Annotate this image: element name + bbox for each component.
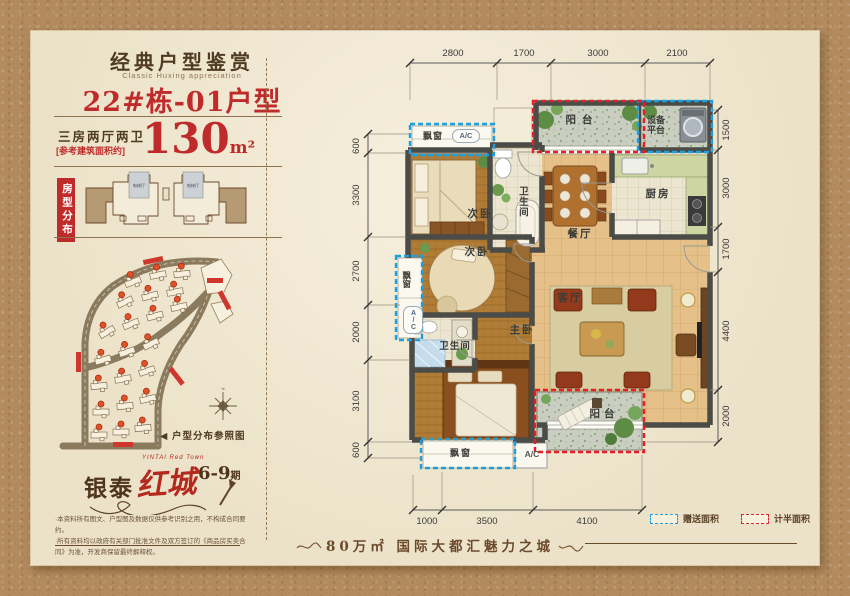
- area-value: 130: [142, 114, 230, 163]
- siteplan-map: N: [55, 248, 260, 453]
- footer-rule: [585, 543, 797, 544]
- siteplan-caption: ◀ 户型分布参照图: [160, 428, 245, 442]
- pointer-icon: ◀: [160, 431, 168, 442]
- brochure-card: 经典户型鉴赏 Classic Huxing appreciation 22#栋-…: [30, 30, 820, 566]
- svg-text:3000: 3000: [587, 48, 608, 59]
- disclaimer: ·本资料所有图文、户型图及数据仅供参考识别之用，不构成合同要约。 ·所有资料均以…: [55, 514, 255, 558]
- elevator-label: 电梯厅: [187, 182, 200, 189]
- svg-text:1700: 1700: [721, 238, 732, 259]
- dining-table: [544, 166, 606, 226]
- flourish-left-icon: [296, 541, 322, 553]
- svg-text:3000: 3000: [721, 177, 732, 198]
- legend-gift-area: 赠送面积: [650, 512, 719, 525]
- label-bath-a: 卫生间: [516, 178, 527, 226]
- label-bedroom-a: 次卧: [458, 208, 502, 220]
- legend-half-area: 计半面积: [741, 512, 810, 525]
- svg-text:3100: 3100: [351, 390, 362, 411]
- compass-icon: N: [209, 386, 237, 420]
- entry-lobby: [494, 108, 532, 148]
- page-subtitle: Classic Huxing appreciation: [82, 71, 282, 80]
- area-note: [参考建筑面积约]: [56, 144, 125, 157]
- svg-text:2800: 2800: [442, 48, 463, 59]
- disclaimer-line: ·所有资料均以政府有关部门批准文件及双方签订的《商品房买卖合同》为准，开发商保留…: [55, 536, 255, 558]
- label-ac-left: A/C: [403, 306, 423, 334]
- label-dining: 餐厅: [558, 228, 602, 240]
- svg-text:2000: 2000: [351, 321, 362, 342]
- developer-logo: 银泰 YINTAI Red Town 红城 6-9期: [60, 455, 260, 517]
- footprint-center-joint: [163, 188, 169, 200]
- label-bath-b: 卫生间: [425, 342, 485, 353]
- label-living: 客厅: [548, 292, 592, 304]
- svg-text:3300: 3300: [351, 184, 362, 205]
- svg-text:1500: 1500: [721, 119, 732, 140]
- svg-text:600: 600: [351, 442, 362, 458]
- label-balcony-bottom: 阳台: [576, 408, 632, 420]
- svg-text:4400: 4400: [721, 320, 732, 341]
- svg-text:3500: 3500: [476, 516, 497, 527]
- label-bay-left: 飘窗: [401, 262, 411, 296]
- svg-text:2700: 2700: [351, 260, 362, 281]
- svg-text:1700: 1700: [513, 48, 534, 59]
- area-figure: 130m²: [142, 118, 255, 160]
- footer-slogan-row: 80万㎡ 国际大都汇魅力之城: [280, 535, 600, 556]
- distribution-tag: 房型分布: [57, 178, 75, 242]
- divider: [55, 545, 240, 546]
- half-area-swatch: [741, 514, 769, 524]
- layout-type: 三房两厅两卫: [58, 126, 145, 145]
- washing-machine: [680, 108, 706, 142]
- logo-flourish: [86, 497, 220, 515]
- svg-text:2100: 2100: [666, 48, 687, 59]
- svg-text:N: N: [222, 386, 225, 391]
- label-balcony-top: 阳台: [554, 114, 610, 126]
- svg-text:2000: 2000: [721, 405, 732, 426]
- label-bay-top: 飘窗: [416, 131, 450, 141]
- wardrobe-bedroom-a: [430, 222, 484, 235]
- svg-text:4100: 4100: [576, 516, 597, 527]
- divider: [54, 237, 282, 238]
- footer-slogan: 80万㎡ 国际大都汇魅力之城: [326, 539, 554, 555]
- elevator-label: 电梯厅: [133, 182, 146, 189]
- svg-text:600: 600: [351, 138, 362, 154]
- flourish-right-icon: [558, 541, 584, 553]
- gift-area-swatch: [650, 514, 678, 524]
- balcony-table: [592, 398, 602, 408]
- panel-separator: [266, 58, 267, 540]
- area-legend: 赠送面积 计半面积: [650, 512, 810, 525]
- label-equipment-platform: 设备平台: [645, 115, 667, 136]
- label-ac-top: A/C: [452, 129, 480, 143]
- svg-text:1000: 1000: [416, 516, 437, 527]
- pen-icon: [216, 477, 238, 507]
- area-unit: m²: [230, 138, 255, 158]
- label-kitchen: 厨房: [636, 188, 680, 200]
- disclaimer-line: ·本资料所有图文、户型图及数据仅供参考识别之用，不构成合同要约。: [55, 514, 255, 536]
- dimension-top: 2800 1700 3000 2100: [406, 48, 714, 100]
- label-bay-bottom: 飘窗: [441, 448, 481, 458]
- label-bedroom-b: 次卧: [455, 246, 499, 258]
- label-master: 主卧: [500, 324, 544, 336]
- brochure-page: 经典户型鉴赏 Classic Huxing appreciation 22#栋-…: [0, 0, 850, 596]
- footprint-diagram: 电梯厅 电梯厅: [80, 158, 252, 236]
- label-ac-bottom: A/C: [517, 450, 547, 460]
